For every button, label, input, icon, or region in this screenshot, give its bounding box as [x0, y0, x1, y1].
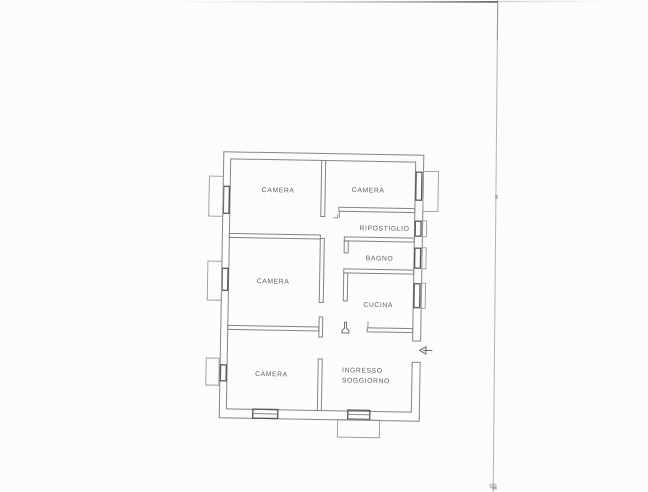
door-jamb-cross — [319, 317, 323, 337]
door-jamb-hook — [333, 214, 338, 218]
scan-top-edge-line-faint — [498, 1, 618, 2]
window-sill-bottom-left — [206, 358, 219, 385]
room-label-soggiorno: SOGGIORNO — [342, 377, 390, 385]
window-cucina — [414, 284, 420, 308]
wall-bagno-left-stub — [344, 241, 348, 253]
window-camera-middle-left — [222, 268, 228, 290]
room-label-camera-top-left: CAMERA — [262, 187, 295, 195]
window-bagno — [415, 248, 421, 268]
scan-top-edge-line — [160, 1, 498, 3]
window-ripostiglio — [415, 221, 421, 236]
window-camera-top-left — [223, 186, 229, 213]
room-label-ripostiglio: RIPOSTIGLIO — [359, 225, 409, 233]
wall-below-camera-top-right — [339, 207, 415, 212]
wall-below-cucina — [367, 328, 413, 333]
scanned-floor-plan-page: CAMERA CAMERA RIPOSTIGLIO BAGNO CUCINA C… — [0, 0, 648, 492]
balcony-bay-top-right — [423, 171, 439, 211]
window-camera-bottom-left — [220, 365, 226, 381]
entrance-arrow-icon — [420, 347, 433, 355]
wall-below-bagno — [344, 269, 414, 274]
scan-bottom-smudge-dark — [492, 487, 497, 490]
room-label-camera-top-right: CAMERA — [352, 187, 385, 195]
wall-segment-hall-mid — [319, 238, 324, 302]
wall-below-ripostiglio — [344, 237, 414, 242]
room-label-camera-middle-left: CAMERA — [257, 278, 290, 286]
wall-camera2-camera3 — [228, 325, 319, 331]
wall-segment-hall-top — [321, 160, 326, 216]
window-sill-top-left — [209, 176, 224, 216]
room-label-cucina: CUCINA — [363, 302, 393, 310]
room-label-ingresso: INGRESSO — [342, 367, 383, 375]
window-camera-top-right — [416, 172, 422, 200]
door-leaf-icon — [342, 322, 349, 333]
window-sill-ripostiglio — [422, 221, 426, 237]
wall-segment-camera-ingresso — [317, 359, 322, 411]
scan-vertical-crease-line — [493, 2, 498, 492]
window-sill-middle-left — [207, 261, 222, 300]
room-label-camera-bottom-left: CAMERA — [255, 371, 288, 379]
entrance-opening — [411, 341, 421, 362]
wall-camera1-camera2 — [229, 233, 320, 239]
room-label-bagno: BAGNO — [366, 255, 394, 262]
scan-blemish-dot — [495, 195, 497, 199]
wall-cucina-left-stub — [343, 273, 347, 301]
floor-plan-drawing: CAMERA CAMERA RIPOSTIGLIO BAGNO CUCINA C… — [0, 0, 648, 492]
balcony-bottom — [337, 420, 379, 438]
floor-plan: CAMERA CAMERA RIPOSTIGLIO BAGNO CUCINA C… — [205, 152, 439, 439]
window-sill-cucina — [421, 283, 425, 308]
